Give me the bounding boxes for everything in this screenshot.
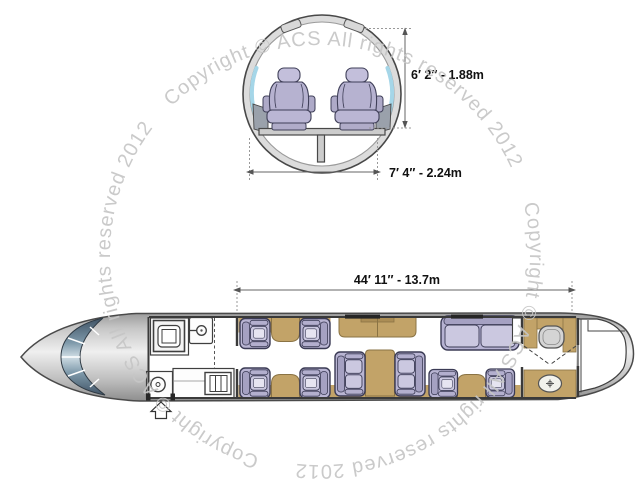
galley-sink — [190, 318, 213, 344]
cabin-length-label: 44′ 11″ - 13.7m — [354, 273, 440, 287]
club-seat — [240, 368, 270, 398]
large-club-seat — [335, 352, 365, 396]
conference-group — [335, 350, 425, 396]
galley-counter — [173, 369, 234, 399]
club-seat — [300, 319, 330, 349]
club-seat — [240, 319, 270, 349]
watermark-text: Copyright © ACS All rights reserved 2012 — [93, 117, 261, 473]
underfloor-divider — [318, 135, 325, 162]
club-seat — [429, 370, 458, 399]
emergency-exit-mark — [451, 315, 483, 319]
conference-table — [366, 350, 395, 396]
credenza — [339, 317, 416, 337]
aircraft-diagram: 6′ 2″ - 1.88m 7′ 4″ - 2.24m 44′ 11″ - 13… — [0, 0, 640, 499]
club-seat — [300, 368, 330, 398]
emergency-exit-mark — [345, 315, 380, 319]
forward-table-bottom — [272, 375, 300, 399]
large-club-seat — [395, 352, 425, 396]
diagram-canvas: 6′ 2″ - 1.88m 7′ 4″ - 2.24m 44′ 11″ - 13… — [0, 0, 640, 499]
cabin-width-label: 7′ 4″ - 2.24m — [389, 166, 462, 180]
forward-table-top — [272, 318, 300, 342]
